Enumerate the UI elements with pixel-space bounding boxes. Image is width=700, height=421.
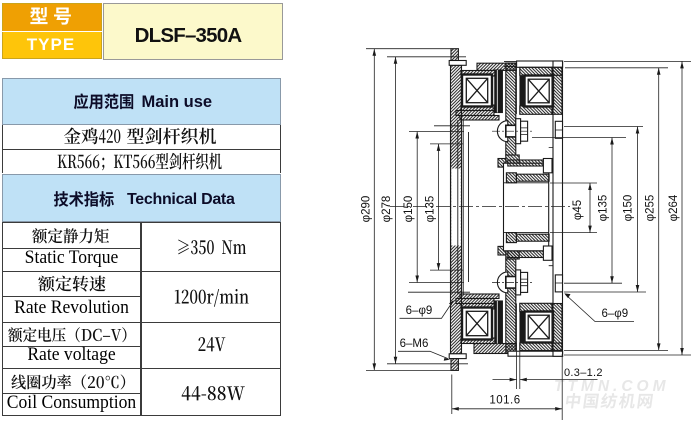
svg-text:6–φ9: 6–φ9 bbox=[406, 305, 433, 317]
svg-text:φ150: φ150 bbox=[623, 195, 635, 222]
svg-text:φ264: φ264 bbox=[668, 194, 680, 221]
svg-text:101.6: 101.6 bbox=[489, 395, 520, 407]
svg-text:6–φ9: 6–φ9 bbox=[602, 308, 629, 320]
svg-text:φ135: φ135 bbox=[425, 196, 437, 223]
svg-text:0.3–1.2: 0.3–1.2 bbox=[564, 367, 603, 379]
svg-text:φ290: φ290 bbox=[360, 196, 372, 223]
svg-text:φ150: φ150 bbox=[403, 196, 415, 223]
svg-text:φ255: φ255 bbox=[645, 195, 657, 222]
svg-text:φ45: φ45 bbox=[572, 200, 584, 220]
svg-text:6–M6: 6–M6 bbox=[400, 338, 429, 350]
svg-text:φ278: φ278 bbox=[381, 196, 393, 223]
svg-text:φ135: φ135 bbox=[597, 195, 609, 222]
